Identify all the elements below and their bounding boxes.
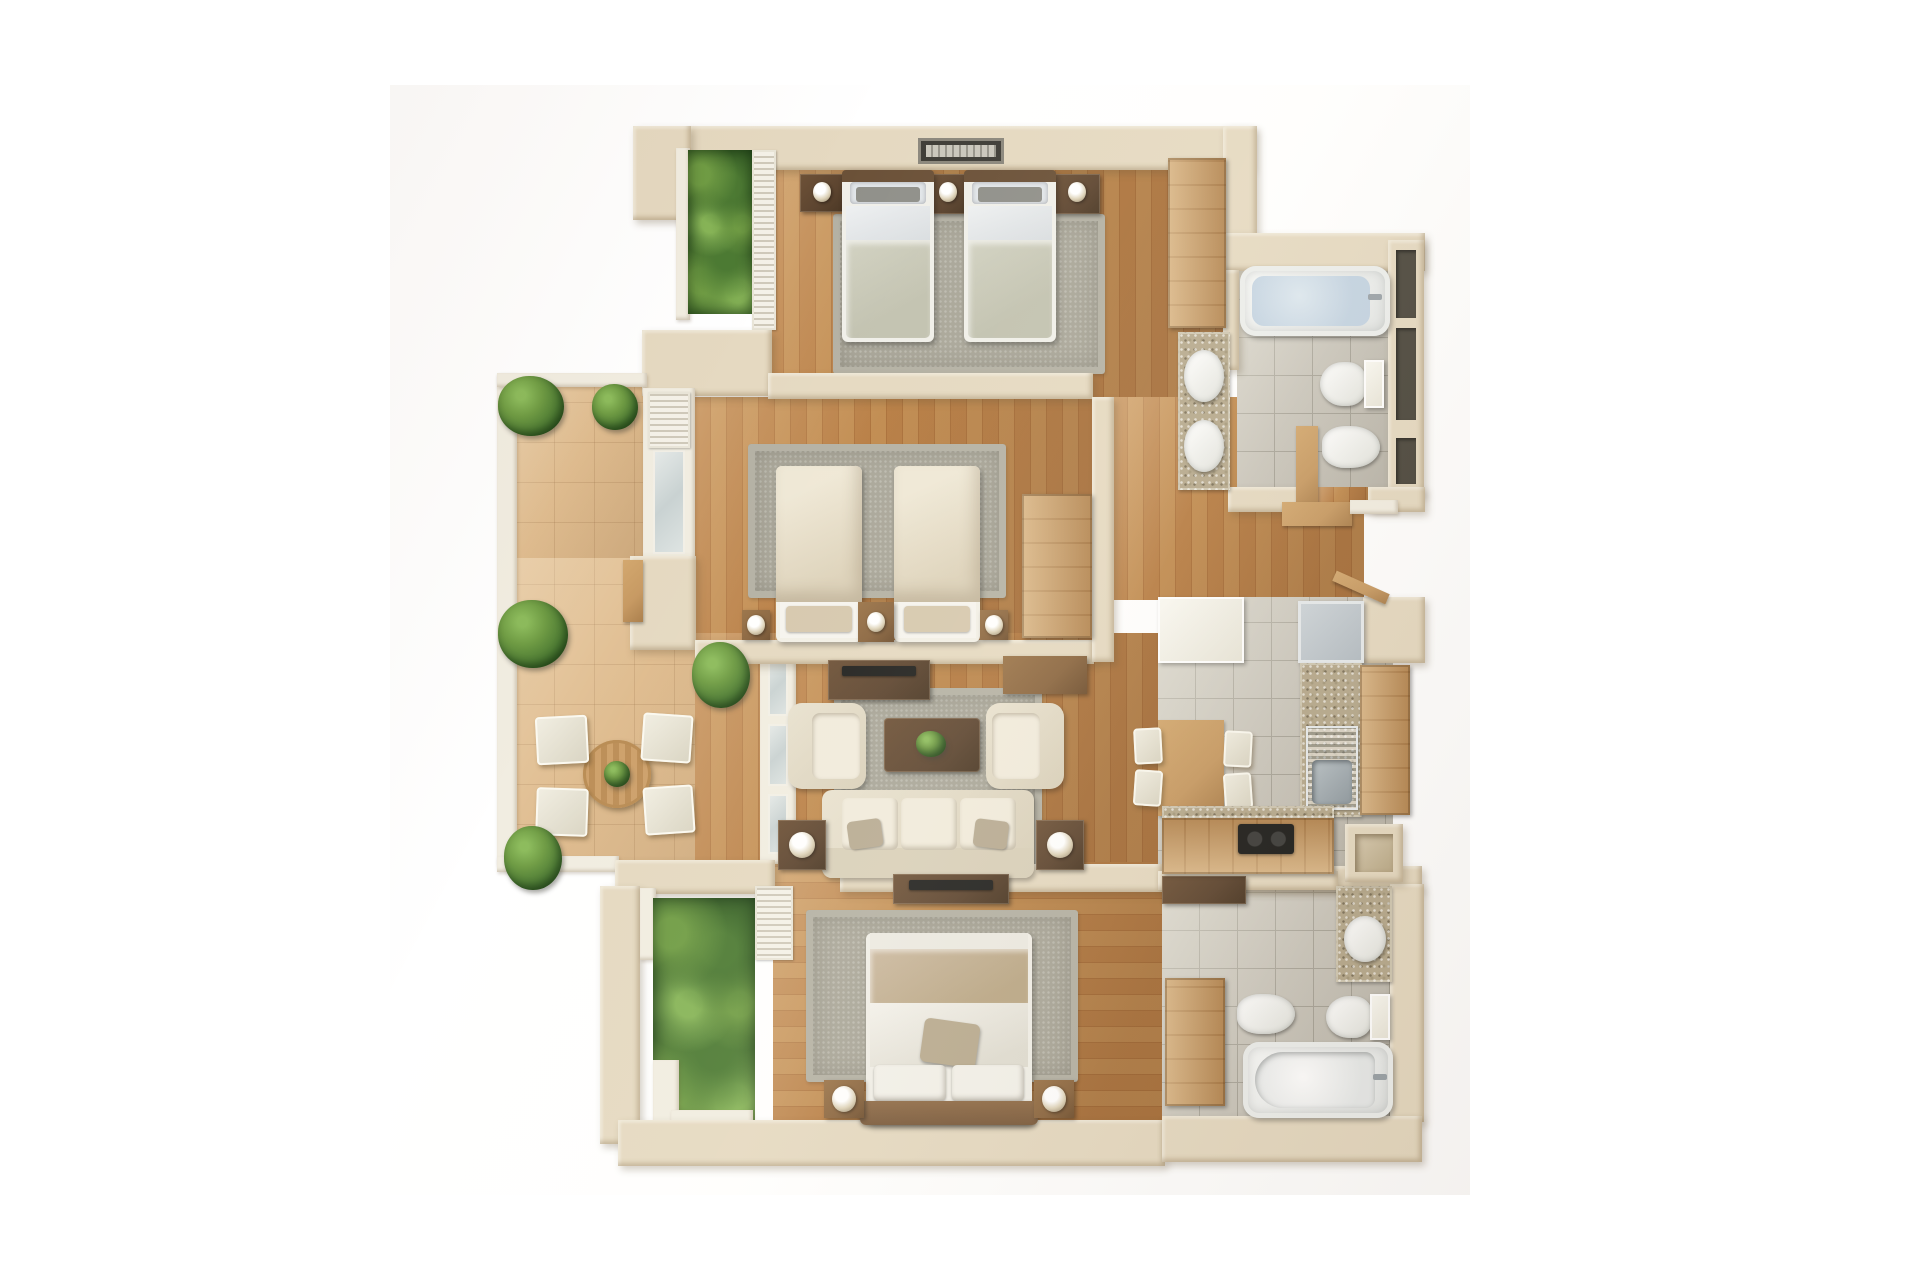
terrace-plant-1 bbox=[498, 376, 564, 436]
window-slot-2 bbox=[1396, 328, 1416, 420]
toilet-bottom-bowl bbox=[1326, 996, 1372, 1038]
bath-faucet bbox=[1373, 1074, 1387, 1080]
headboard bbox=[842, 170, 934, 182]
bidet-top bbox=[1322, 426, 1380, 468]
bath-faucet bbox=[1368, 294, 1382, 300]
twin-bed-1 bbox=[842, 170, 934, 342]
pillow-beige bbox=[786, 606, 852, 632]
blanket bbox=[846, 240, 930, 338]
window-slot-3 bbox=[1396, 438, 1416, 484]
double-bed bbox=[866, 933, 1032, 1125]
desk-bedroom-middle bbox=[1022, 494, 1092, 638]
twin-bed-2 bbox=[964, 170, 1056, 342]
toilet-bottom-tank bbox=[1370, 994, 1390, 1040]
sideboard-bedroom-bottom bbox=[1162, 876, 1246, 904]
table-lamp bbox=[867, 612, 885, 632]
twin-bed-4 bbox=[894, 466, 980, 642]
planter-garden-top bbox=[688, 150, 752, 314]
tv-bedroom-middle bbox=[842, 666, 916, 676]
throw-pillow bbox=[846, 818, 884, 850]
armchair-seat bbox=[812, 713, 860, 779]
shutter-bedroom-top bbox=[752, 150, 776, 330]
shutter-bedroom-middle bbox=[648, 392, 690, 448]
window-slot-1 bbox=[1396, 250, 1416, 318]
terrace-chair-1 bbox=[535, 715, 589, 766]
table-lamp bbox=[747, 615, 765, 635]
window-glass bbox=[653, 450, 685, 554]
table-plant bbox=[604, 761, 630, 787]
wall-bedroom-middle-east bbox=[1092, 397, 1114, 662]
accent-pillow bbox=[919, 1017, 981, 1068]
door-bathroom-top bbox=[1296, 426, 1318, 510]
table-lamp bbox=[813, 182, 831, 202]
wall-right-upper bbox=[1223, 126, 1257, 240]
toilet-top-bowl bbox=[1320, 362, 1366, 406]
wall-bottomleft-west bbox=[600, 886, 640, 1144]
table-lamp bbox=[1068, 182, 1086, 202]
refrigerator bbox=[1298, 601, 1364, 663]
kitchen-chair-2 bbox=[1133, 769, 1163, 807]
niche-opening bbox=[1355, 834, 1393, 872]
plant-living bbox=[692, 642, 750, 708]
table-lamp bbox=[939, 182, 957, 202]
kitchen-chair-4 bbox=[1223, 772, 1253, 810]
duvet bbox=[894, 466, 980, 602]
wardrobe-bedroom-bottom bbox=[1165, 978, 1225, 1106]
kitchen-sink bbox=[1306, 726, 1358, 810]
headboard bbox=[964, 170, 1056, 182]
wall-bathroom-bottom-east bbox=[1390, 884, 1424, 1122]
sink-1 bbox=[1184, 350, 1224, 402]
kitchen-chair-1 bbox=[1133, 727, 1163, 764]
pillow-left bbox=[874, 1065, 946, 1101]
window-top-bedroom bbox=[918, 138, 1004, 164]
wardrobe-bedroom-top bbox=[1168, 158, 1226, 328]
bathtub-top bbox=[1240, 266, 1390, 336]
wall-kitchen-east bbox=[1363, 597, 1425, 663]
terrace-wood-bench bbox=[623, 560, 643, 622]
table-lamp bbox=[789, 832, 815, 858]
kitchen-cabinet-east bbox=[1360, 665, 1410, 815]
bath-water bbox=[1252, 276, 1370, 326]
pantry-niche bbox=[1345, 824, 1403, 882]
sofa-cushion-2 bbox=[901, 798, 957, 850]
kitchen-counter-white bbox=[1158, 597, 1244, 663]
french-door-glass-2 bbox=[768, 724, 788, 786]
bathtub-bottom bbox=[1243, 1042, 1393, 1118]
terrace-chair-2 bbox=[640, 712, 693, 763]
kitchen-chair-3 bbox=[1223, 730, 1253, 767]
table-lamp bbox=[1042, 1086, 1066, 1112]
bidet-bottom bbox=[1237, 994, 1295, 1034]
wall-bathroom-bottom-south bbox=[1162, 1116, 1422, 1162]
window-blind bbox=[926, 145, 996, 157]
twin-bed-3 bbox=[776, 466, 862, 642]
console-table-hall bbox=[1282, 502, 1352, 526]
armchair-left bbox=[788, 703, 866, 789]
wall-bedroom-top-bottom bbox=[768, 373, 1093, 399]
entry-threshold-step bbox=[1350, 500, 1398, 514]
armchair-right bbox=[986, 703, 1064, 789]
throw-pillow bbox=[972, 818, 1009, 850]
wall-bathroom-top-east bbox=[1388, 240, 1424, 496]
window-bedroom-middle bbox=[643, 388, 695, 562]
wall-bottom bbox=[618, 1120, 1165, 1166]
pillow-beige bbox=[904, 606, 970, 632]
wall-left-bedroom-top bbox=[642, 330, 772, 396]
kitchen-backsplash bbox=[1162, 806, 1334, 818]
sink-bottom bbox=[1344, 916, 1386, 962]
toilet-top-tank bbox=[1364, 360, 1384, 408]
armchair-seat bbox=[992, 713, 1040, 779]
sink-basin bbox=[1312, 760, 1352, 804]
table-lamp bbox=[1047, 832, 1073, 858]
terrace-plant-4 bbox=[504, 826, 562, 890]
terrace-plant-2 bbox=[592, 384, 638, 430]
blanket-beige bbox=[870, 949, 1028, 1003]
terrace-chair-4 bbox=[642, 784, 695, 835]
terrace-plant-3 bbox=[498, 600, 568, 668]
blanket bbox=[968, 240, 1052, 338]
pillow-gray bbox=[978, 187, 1042, 202]
tub-basin bbox=[1255, 1052, 1375, 1108]
floor-plan bbox=[0, 0, 1920, 1280]
sink-2 bbox=[1184, 420, 1224, 472]
shutter-bedroom-bottom bbox=[755, 886, 793, 960]
tv-bedroom-bottom bbox=[909, 880, 993, 890]
headboard bbox=[860, 1101, 1038, 1125]
dining-table-kitchen bbox=[1158, 720, 1224, 816]
cooktop bbox=[1238, 824, 1294, 854]
coffee-table-plant bbox=[916, 731, 946, 757]
duvet bbox=[776, 466, 862, 602]
coffee-table bbox=[884, 718, 980, 772]
sheet bbox=[846, 206, 930, 242]
table-lamp bbox=[832, 1086, 856, 1112]
table-lamp bbox=[985, 615, 1003, 635]
sheet bbox=[968, 206, 1052, 242]
console-bedroom-middle bbox=[1003, 656, 1087, 694]
pillow-right bbox=[952, 1065, 1024, 1101]
sofa bbox=[822, 790, 1034, 878]
pillow-gray bbox=[856, 187, 920, 202]
french-door-glass-1 bbox=[768, 656, 788, 716]
